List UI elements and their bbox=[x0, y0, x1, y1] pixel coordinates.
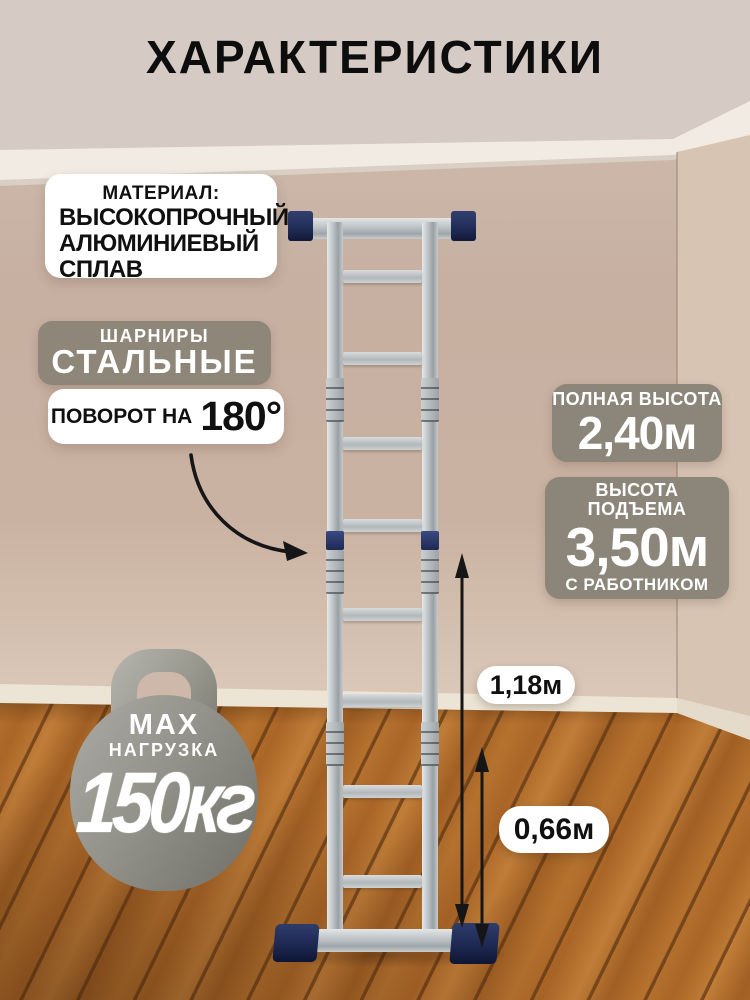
reach-height-badge: ВЫСОТА ПОДЪЕМА 3,50м С РАБОТНИКОМ bbox=[545, 477, 729, 599]
ladder-rung bbox=[343, 694, 422, 707]
ladder-top-cap-right bbox=[451, 211, 476, 241]
ladder-hinge-middle-right bbox=[421, 550, 439, 594]
hinges-value: СТАЛЬНЫЕ bbox=[51, 345, 257, 380]
reach-height-value: 3,50м bbox=[566, 520, 709, 575]
ladder-rung bbox=[343, 785, 422, 798]
hinges-label: ШАРНИРЫ bbox=[100, 327, 209, 345]
max-load-text: MAX НАГРУЗКА 150кг bbox=[58, 711, 270, 844]
ladder-latch-left bbox=[326, 531, 344, 550]
reach-height-label: ВЫСОТА ПОДЪЕМА bbox=[545, 481, 729, 521]
ladder-hinge-upper-right bbox=[421, 378, 439, 422]
material-line: АЛЮМИНИЕВЫЙ bbox=[59, 231, 263, 257]
material-line: СПЛАВ bbox=[59, 257, 263, 283]
rotation-value: 180° bbox=[200, 393, 281, 440]
ladder-rung bbox=[343, 875, 422, 888]
material-card: МАТЕРИАЛ: ВЫСОКОПРОЧНЫЙ АЛЮМИНИЕВЫЙ СПЛА… bbox=[45, 174, 277, 278]
full-height-badge: ПОЛНАЯ ВЫСОТА 2,40м bbox=[552, 384, 722, 462]
ladder-foot-left bbox=[272, 924, 319, 962]
page-title: ХАРАКТЕРИСТИКИ bbox=[0, 30, 750, 84]
ladder-hinge-lower-right bbox=[421, 722, 439, 766]
max-load-value: 150кг bbox=[70, 763, 257, 845]
ladder-hinge-lower-left bbox=[326, 722, 344, 766]
hinges-card: ШАРНИРЫ СТАЛЬНЫЕ bbox=[38, 321, 271, 385]
ladder-rung bbox=[343, 352, 422, 365]
measurement-1-18: 1,18м bbox=[477, 666, 575, 704]
rotation-label: ПОВОРОТ НА bbox=[51, 405, 192, 429]
ladder-hinge-upper-left bbox=[326, 378, 344, 422]
max-load-kettlebell: MAX НАГРУЗКА 150кг bbox=[70, 649, 260, 889]
ladder-top-cap-left bbox=[288, 211, 313, 241]
max-load-line1: MAX bbox=[58, 711, 270, 740]
material-line: ВЫСОКОПРОЧНЫЙ bbox=[59, 205, 263, 231]
rotation-card: ПОВОРОТ НА 180° bbox=[48, 389, 284, 444]
ladder-rung bbox=[343, 270, 422, 283]
material-label: МАТЕРИАЛ: bbox=[59, 183, 263, 205]
reach-height-note: С РАБОТНИКОМ bbox=[565, 575, 708, 595]
ladder-hinge-middle-left bbox=[326, 550, 344, 594]
ladder-rung bbox=[343, 608, 422, 621]
full-height-value: 2,40м bbox=[578, 410, 697, 456]
ladder-foot-right bbox=[449, 923, 500, 964]
measurement-0-66: 0,66м bbox=[499, 806, 609, 853]
ladder-latch-right bbox=[421, 531, 439, 550]
ladder-rung bbox=[343, 437, 422, 450]
ladder-rung bbox=[343, 519, 422, 532]
